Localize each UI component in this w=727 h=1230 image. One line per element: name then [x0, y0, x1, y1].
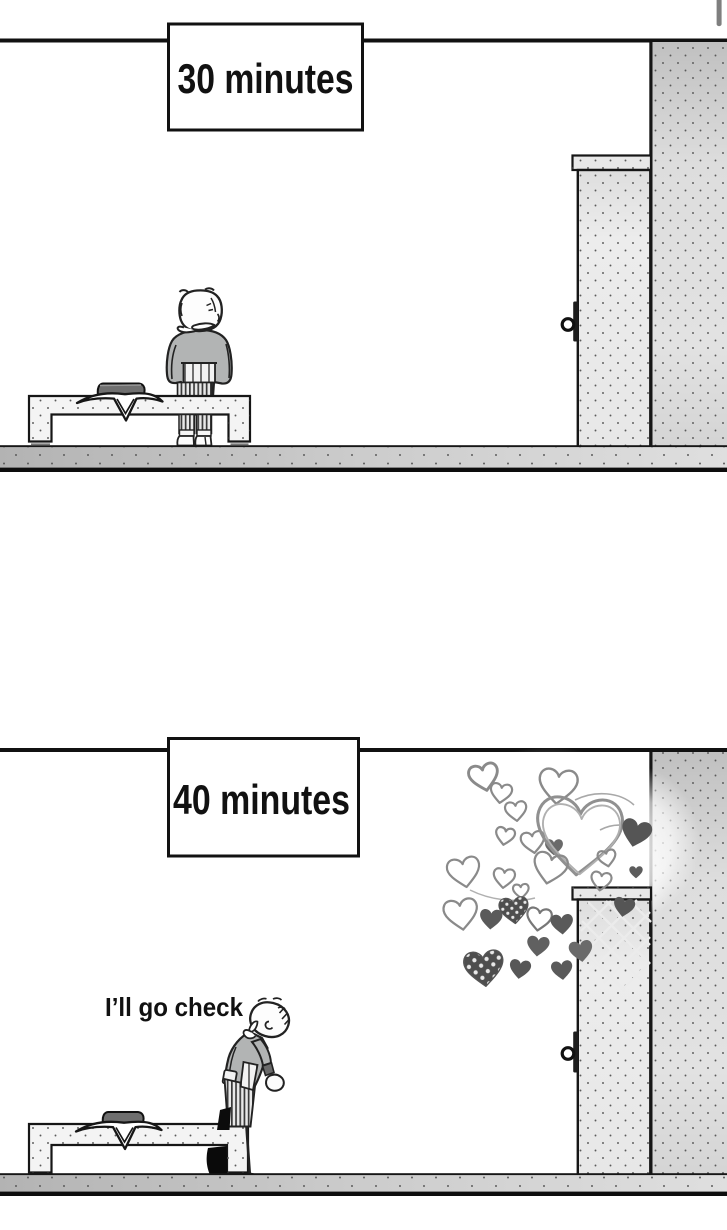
- svg-text:40 minutes: 40 minutes: [173, 776, 350, 823]
- svg-text:30 minutes: 30 minutes: [178, 55, 354, 102]
- svg-text:I’ll go check: I’ll go check: [105, 992, 243, 1022]
